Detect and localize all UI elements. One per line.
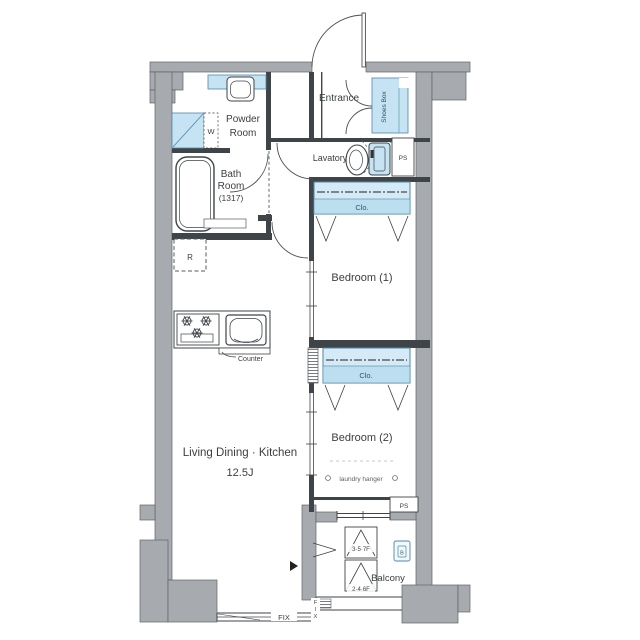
powder-room-label: Powder xyxy=(226,114,261,125)
washbasin-icon xyxy=(227,77,254,101)
wall-segment xyxy=(402,585,458,623)
entrance-step-line xyxy=(321,72,322,138)
door-stop xyxy=(309,390,314,393)
bedroom2-area: Clo. Bedroom (2) laundry hanger PS xyxy=(306,348,418,512)
wall-segment xyxy=(266,72,271,150)
fix-vertical-label: X xyxy=(314,614,318,620)
floor-plan: Entrance Shoes Box Lavatory PS W Powder … xyxy=(0,0,640,640)
powder-room-label: Room xyxy=(230,128,257,139)
wall-segment xyxy=(309,72,314,138)
bath-room-label: Room xyxy=(218,181,245,192)
shoes-box-door-swing-icon xyxy=(346,108,372,134)
laundry-hanger-icon xyxy=(326,476,331,481)
laundry-hanger-label: laundry hanger xyxy=(339,476,383,483)
entrance-label: Entrance xyxy=(319,93,359,104)
wall-segment xyxy=(172,148,230,153)
door-stop xyxy=(309,475,314,478)
wall-segment xyxy=(309,177,314,258)
washer-label: W xyxy=(207,127,215,136)
lavatory-door-swing-icon xyxy=(277,143,313,179)
drain-label: B xyxy=(400,551,404,557)
escape-hatch-upper-label: 3·5·7F xyxy=(352,547,370,553)
floor-plan-drawing: Entrance Shoes Box Lavatory PS W Powder … xyxy=(0,0,640,640)
bedroom1-label: Bedroom (1) xyxy=(331,272,392,284)
refrigerator-label: R xyxy=(187,253,193,262)
entrance-door-leaf-icon xyxy=(362,13,365,67)
wall-segment xyxy=(432,72,466,100)
bedroom2-label: Bedroom (2) xyxy=(331,432,392,444)
pipe-space-label: PS xyxy=(400,503,409,510)
bath-room-label: Bath xyxy=(221,169,242,180)
lavatory-area: Lavatory PS xyxy=(277,138,414,179)
counter-lip xyxy=(219,348,270,354)
direction-marker-icon xyxy=(290,561,298,571)
wall-segment xyxy=(140,505,155,520)
lavatory-label: Lavatory xyxy=(313,153,348,163)
balcony-label: Balcony xyxy=(371,573,405,584)
closet-2-label: Clo. xyxy=(359,371,372,380)
window-opening-lines xyxy=(313,550,336,557)
toilet-handle-icon xyxy=(371,150,374,158)
bath-ledge xyxy=(204,219,246,228)
wall-segment xyxy=(390,512,416,520)
wall-segment xyxy=(258,215,272,221)
balcony-area: 3·5·7F 2·4·6F B Balcony xyxy=(316,511,410,610)
hall-door-swing-icon xyxy=(272,222,308,258)
powder-room-area: W Powder Room xyxy=(172,75,266,148)
shoes-box-label: Shoes Box xyxy=(381,91,388,123)
laundry-hanger-icon xyxy=(393,476,398,481)
bedroom1-area: Clo. Bedroom (1) xyxy=(306,182,410,340)
duct-hatch xyxy=(308,348,318,383)
folding-door-icon xyxy=(325,385,345,410)
ldk-size-label: 12.5J xyxy=(227,467,254,479)
fix-window-area: FIX F I X xyxy=(217,598,320,622)
bath-room-area: Bath Room (1317) xyxy=(176,154,268,231)
wall-segment xyxy=(316,512,337,522)
wall-segment xyxy=(309,478,314,512)
entrance-area: Entrance Shoes Box xyxy=(312,13,409,134)
wall-segment xyxy=(458,585,470,612)
folding-door-icon xyxy=(316,216,336,241)
fix-label: FIX xyxy=(278,613,290,622)
escape-hatch-lower-label: 2·4·6F xyxy=(352,587,370,593)
closet-1-label: Clo. xyxy=(355,203,368,212)
wall-segment xyxy=(155,72,172,580)
toilet-tank-icon xyxy=(369,143,390,175)
wall-segment xyxy=(366,62,470,72)
wall-segment xyxy=(168,580,217,622)
wall-segment xyxy=(140,540,168,622)
bath-room-size-label: (1317) xyxy=(219,193,244,203)
wall-segment xyxy=(309,383,314,390)
counter-label: Counter xyxy=(238,356,264,363)
window-opening-lines xyxy=(313,543,336,550)
wall-segment xyxy=(302,505,316,600)
entrance-door-swing-icon xyxy=(312,15,364,67)
folding-door-icon xyxy=(388,216,408,241)
folding-door-icon xyxy=(388,385,408,410)
shoes-box-notch xyxy=(399,78,409,88)
door-stop xyxy=(309,258,314,261)
wall-segment xyxy=(309,177,430,182)
door-stop xyxy=(309,337,314,340)
wall-segment xyxy=(150,62,312,72)
escape-hatch-upper xyxy=(345,527,377,558)
pipe-space-label: PS xyxy=(399,155,408,162)
wall-segment xyxy=(309,340,430,348)
ldk-label: Living Dining · Kitchen xyxy=(183,447,297,459)
sink-icon xyxy=(226,315,266,345)
